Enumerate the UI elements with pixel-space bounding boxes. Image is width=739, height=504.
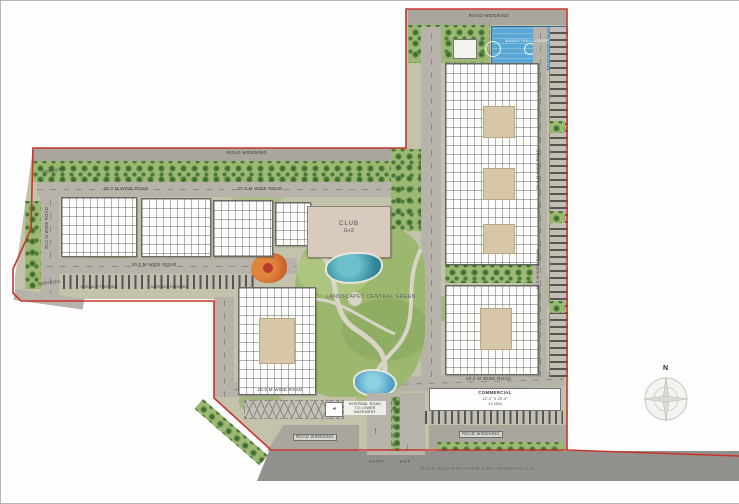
- compass-north-label: N: [663, 365, 668, 373]
- commercial-units: 12 NOs: [430, 402, 560, 406]
- label-road-right-vertical-upper: 20.0 M WIDE ROAD: [536, 149, 541, 189]
- playground-equipment: [263, 263, 273, 273]
- club-building: CLUB G+2: [307, 206, 391, 258]
- label-road-right-vertical-lower: 20.0 M WIDE ROAD: [536, 249, 541, 289]
- label-exit: EXIT: [400, 460, 410, 465]
- trees-patch: [549, 301, 565, 313]
- trees-patch: [549, 121, 565, 133]
- utility-building: [453, 39, 477, 59]
- label-surface-parking-left: SURFACE PARKING: [77, 285, 121, 289]
- internal-ramp-note: INTERNAL ROAD TO LOWER BASEMENT: [344, 401, 386, 415]
- label-road-widening-note: ROAD WIDENING FROM SIDE OWNER'S LAND: [421, 466, 581, 471]
- tower-block-5: [238, 287, 316, 395]
- tower-block-3: [213, 200, 273, 257]
- tower-block-4: [275, 202, 311, 246]
- playground: [251, 253, 287, 283]
- label-surface-parking-right: SURFACE PARKING: [147, 285, 191, 289]
- parking-right-edge: [549, 27, 568, 377]
- commercial-title: COMMERCIAL: [430, 390, 560, 395]
- tower-block-1: [61, 197, 137, 257]
- label-road-widening-left: ROAD WIDENING: [215, 150, 279, 155]
- label-entry: ENTRY: [369, 460, 384, 465]
- club-floors-label: G+2: [308, 229, 390, 235]
- tower-cluster-lower-right: [445, 285, 539, 375]
- tower-block-2: [141, 198, 211, 257]
- label-road-widening-bottom-left: ROAD WIDENING: [293, 434, 337, 441]
- label-central-green: LANDSCAPED CENTRAL GREEN: [313, 295, 429, 301]
- compass-rose: [641, 374, 693, 426]
- green-corridor: [391, 149, 421, 231]
- club-label: CLUB: [308, 221, 390, 228]
- tower-courtyard: [483, 168, 515, 200]
- label-road-widening-top: ROAD WIDENING: [457, 13, 521, 18]
- tree-row-bottom-right: [437, 442, 563, 451]
- commercial-size: 12'-0" X 29'-0": [430, 397, 560, 401]
- label-road-top-center: 20.0 M WIDE ROAD: [225, 186, 295, 191]
- basement-ramp-box: ◂: [325, 402, 343, 417]
- tower-courtyard: [480, 308, 512, 350]
- label-basketball-court: BASKETBALL COURT: [493, 39, 563, 44]
- commercial-parking-row: [425, 411, 563, 424]
- tower-courtyard: [259, 318, 295, 364]
- green-strip-far-left: [25, 201, 41, 289]
- label-road-middle: 20.0 M WIDE ROAD: [119, 262, 189, 267]
- tower-courtyard: [483, 224, 515, 254]
- label-road-right-bottom: 20.0 M WIDE ROAD: [451, 376, 526, 381]
- label-road-bottom-center: 20.0 M WIDE ROAD: [245, 387, 315, 392]
- site-plan: CLUB G+2 ◂ INTERNAL ROAD TO LOWER BASEME…: [0, 0, 739, 504]
- commercial-building: COMMERCIAL 12'-0" X 29'-0" 12 NOs: [429, 388, 561, 411]
- label-road-left-vertical: 20.0 M WIDE ROAD: [45, 207, 50, 249]
- tree-row-left-wing: [33, 161, 407, 182]
- internal-ramp-note-line3: BASEMENT: [344, 410, 386, 414]
- entry-median-trees: [391, 397, 400, 451]
- label-road-top-left: 20.0 M WIDE ROAD: [91, 186, 161, 191]
- tower-cluster-upper-right: [445, 63, 539, 265]
- exit-arrow-icon: ↓: [405, 443, 410, 453]
- label-road-widening-bottom-right: ROAD WIDENING: [459, 431, 503, 438]
- entry-arrow-icon: ↑: [373, 427, 378, 437]
- green-gap-right-block: [445, 265, 537, 283]
- tower-courtyard: [483, 106, 515, 138]
- trees-patch: [549, 211, 565, 223]
- road-lower-vertical: [214, 297, 234, 397]
